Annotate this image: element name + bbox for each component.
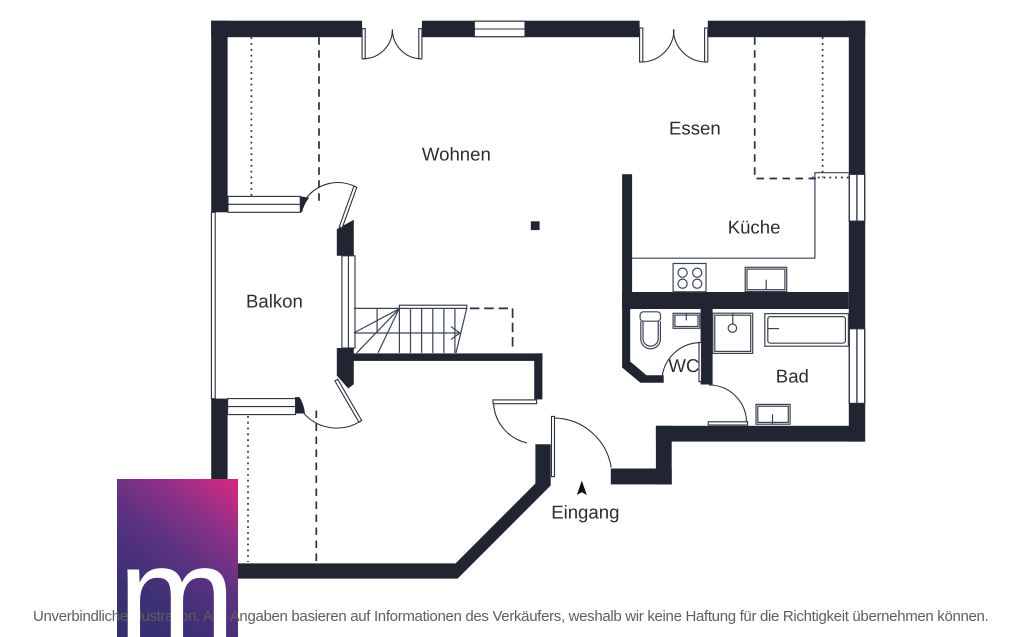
svg-text:Bad: Bad (776, 365, 809, 386)
svg-text:Essen: Essen (669, 118, 721, 139)
svg-text:Eingang: Eingang (551, 502, 619, 523)
svg-text:Küche: Küche (728, 217, 781, 238)
svg-text:Wohnen: Wohnen (422, 144, 491, 165)
svg-text:WC: WC (668, 355, 699, 376)
svg-text:Balkon: Balkon (246, 291, 303, 312)
